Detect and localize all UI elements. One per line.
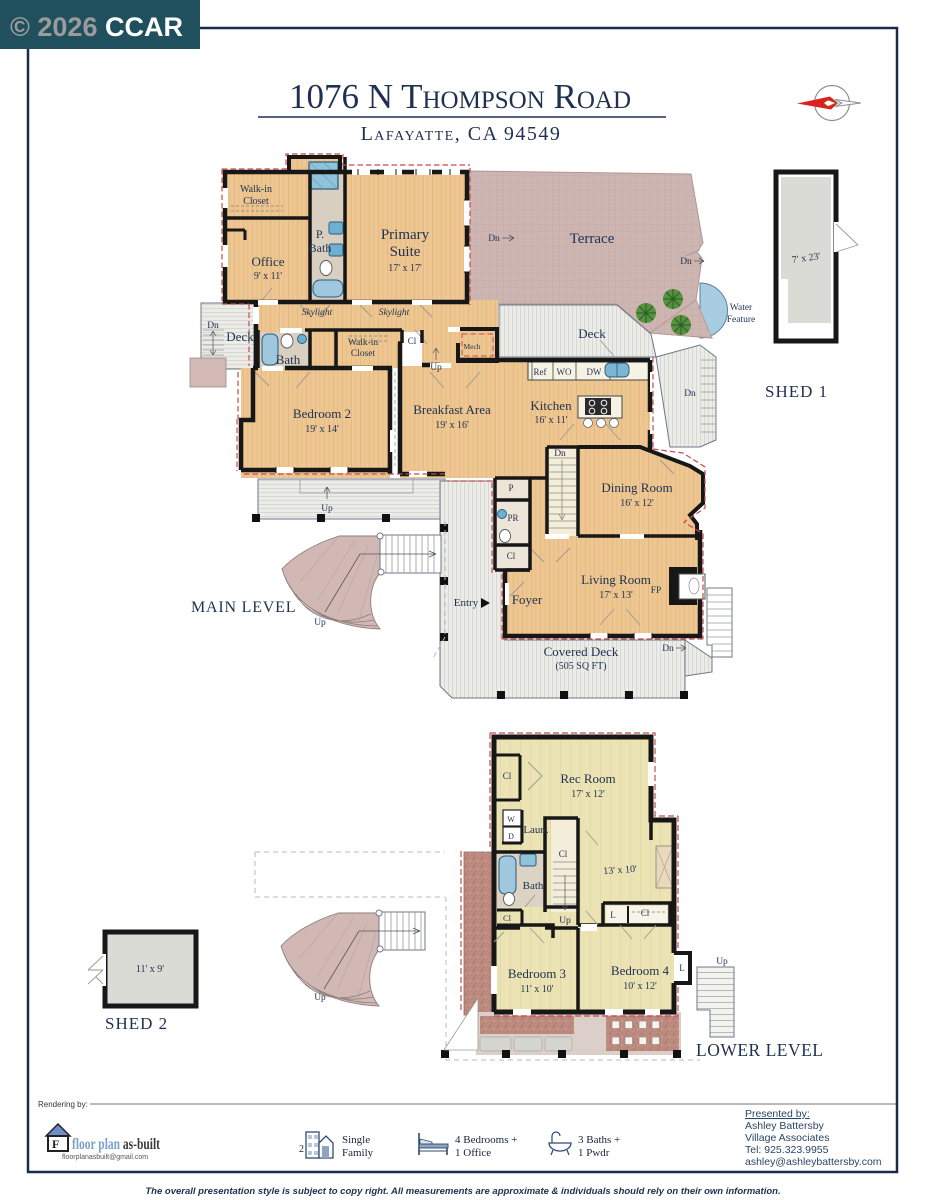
svg-text:Closet: Closet xyxy=(351,349,376,359)
svg-text:11' x 10': 11' x 10' xyxy=(520,984,553,995)
svg-text:Kitchen: Kitchen xyxy=(530,398,572,413)
svg-text:1 Office: 1 Office xyxy=(455,1147,491,1159)
svg-text:Terrace: Terrace xyxy=(570,231,615,247)
svg-text:L: L xyxy=(679,963,685,973)
svg-text:Up: Up xyxy=(314,618,326,628)
svg-text:Lafayatte, CA 94549: Lafayatte, CA 94549 xyxy=(361,123,562,145)
svg-text:Bath: Bath xyxy=(309,241,332,255)
svg-text:DW: DW xyxy=(587,367,602,377)
svg-text:19' x 14': 19' x 14' xyxy=(305,424,339,435)
svg-text:Single: Single xyxy=(342,1134,370,1146)
svg-text:1076 N Thompson Road: 1076 N Thompson Road xyxy=(289,77,631,116)
svg-text:Bath: Bath xyxy=(523,880,544,892)
svg-text:PR: PR xyxy=(507,513,518,523)
svg-text:Primary: Primary xyxy=(381,227,430,243)
svg-text:FP: FP xyxy=(651,586,662,596)
svg-text:Breakfast Area: Breakfast Area xyxy=(413,402,491,417)
svg-text:Dn: Dn xyxy=(662,644,674,654)
svg-text:Bedroom 4: Bedroom 4 xyxy=(611,963,670,978)
svg-text:P: P xyxy=(508,483,513,493)
svg-text:Tel: 925.323.9955: Tel: 925.323.9955 xyxy=(745,1144,829,1156)
svg-text:F: F xyxy=(52,1137,59,1151)
svg-text:Bath: Bath xyxy=(276,352,301,367)
svg-text:Cl: Cl xyxy=(641,908,650,918)
svg-text:Presented by:: Presented by: xyxy=(745,1108,810,1120)
svg-text:The overall presentation style: The overall presentation style is subjec… xyxy=(145,1186,780,1197)
svg-text:(505 SQ FT): (505 SQ FT) xyxy=(555,661,606,672)
svg-text:1 Pwdr: 1 Pwdr xyxy=(578,1147,610,1159)
svg-text:Entry: Entry xyxy=(454,597,479,609)
svg-text:3 Baths +: 3 Baths + xyxy=(578,1134,620,1146)
svg-text:Feature: Feature xyxy=(727,315,756,325)
svg-text:9' x 11': 9' x 11' xyxy=(254,271,282,282)
svg-text:17' x 13': 17' x 13' xyxy=(599,590,633,601)
svg-text:Closet: Closet xyxy=(243,196,269,207)
svg-text:2: 2 xyxy=(299,1144,304,1155)
svg-text:Up: Up xyxy=(321,504,333,514)
svg-text:4 Bedrooms +: 4 Bedrooms + xyxy=(455,1134,517,1146)
svg-text:Ref: Ref xyxy=(534,367,547,377)
svg-text:Bedroom 3: Bedroom 3 xyxy=(508,966,566,981)
svg-text:Dn: Dn xyxy=(207,321,219,331)
svg-text:Skylight: Skylight xyxy=(302,308,333,318)
svg-text:Cl: Cl xyxy=(408,336,417,346)
svg-text:16' x 12': 16' x 12' xyxy=(620,498,654,509)
svg-text:Cl: Cl xyxy=(503,913,512,923)
svg-text:Dn: Dn xyxy=(488,234,500,244)
svg-text:Skylight: Skylight xyxy=(379,308,410,318)
svg-text:Up: Up xyxy=(430,363,442,373)
svg-text:floorplanasbuilt@gmail.com: floorplanasbuilt@gmail.com xyxy=(62,1154,148,1161)
svg-text:Village Associates: Village Associates xyxy=(745,1132,829,1144)
svg-text:17' x 12': 17' x 12' xyxy=(571,789,605,800)
svg-text:SHED 1: SHED 1 xyxy=(765,382,828,401)
svg-text:Walk-in: Walk-in xyxy=(240,184,272,195)
svg-text:MAIN LEVEL: MAIN LEVEL xyxy=(191,599,296,616)
svg-text:Rendering by:: Rendering by: xyxy=(38,1100,88,1109)
svg-text:Dn: Dn xyxy=(684,389,696,399)
svg-text:Dn: Dn xyxy=(680,257,692,267)
svg-text:Laun.: Laun. xyxy=(523,824,549,836)
svg-text:16' x 11': 16' x 11' xyxy=(534,415,567,426)
svg-text:Cl: Cl xyxy=(507,551,516,561)
svg-text:Foyer: Foyer xyxy=(512,592,543,607)
svg-text:Covered Deck: Covered Deck xyxy=(544,644,619,659)
svg-text:floor plan as-built: floor plan as-built xyxy=(72,1136,160,1153)
svg-text:SHED 2: SHED 2 xyxy=(105,1014,168,1033)
svg-text:17' x 17': 17' x 17' xyxy=(388,263,422,274)
svg-text:11' x 9': 11' x 9' xyxy=(136,964,164,975)
svg-text:19' x 16': 19' x 16' xyxy=(435,420,469,431)
svg-text:Up: Up xyxy=(559,916,571,926)
svg-text:13' x 10': 13' x 10' xyxy=(603,864,637,877)
svg-text:Walk-in: Walk-in xyxy=(348,338,379,348)
svg-text:Mech: Mech xyxy=(463,342,480,351)
svg-text:Cl: Cl xyxy=(559,849,568,859)
svg-text:Water: Water xyxy=(730,303,753,313)
svg-text:Bedroom 2: Bedroom 2 xyxy=(293,406,351,421)
svg-text:ashley@ashleybattersby.com: ashley@ashleybattersby.com xyxy=(745,1156,882,1168)
svg-text:P.: P. xyxy=(316,227,324,241)
svg-text:D: D xyxy=(508,832,514,841)
svg-text:Dn: Dn xyxy=(554,449,566,459)
svg-text:Office: Office xyxy=(252,254,285,269)
svg-text:Up: Up xyxy=(716,957,728,967)
svg-text:Deck: Deck xyxy=(226,329,254,344)
svg-text:W: W xyxy=(507,815,515,824)
svg-text:Family: Family xyxy=(342,1147,374,1159)
svg-text:© 2026 CCAR: © 2026 CCAR xyxy=(10,12,183,42)
svg-text:WO: WO xyxy=(557,367,572,377)
svg-text:Ashley Battersby: Ashley Battersby xyxy=(745,1120,825,1132)
svg-text:L: L xyxy=(610,910,616,920)
svg-text:Up: Up xyxy=(314,993,326,1003)
svg-text:Suite: Suite xyxy=(390,244,421,260)
svg-text:Cl: Cl xyxy=(503,771,512,781)
svg-text:Rec Room: Rec Room xyxy=(560,771,615,786)
svg-text:10' x 12': 10' x 12' xyxy=(623,981,657,992)
svg-text:Deck: Deck xyxy=(578,326,606,341)
svg-text:LOWER LEVEL: LOWER LEVEL xyxy=(696,1040,823,1060)
svg-text:Dining Room: Dining Room xyxy=(601,480,672,495)
svg-text:Living Room: Living Room xyxy=(581,572,651,587)
